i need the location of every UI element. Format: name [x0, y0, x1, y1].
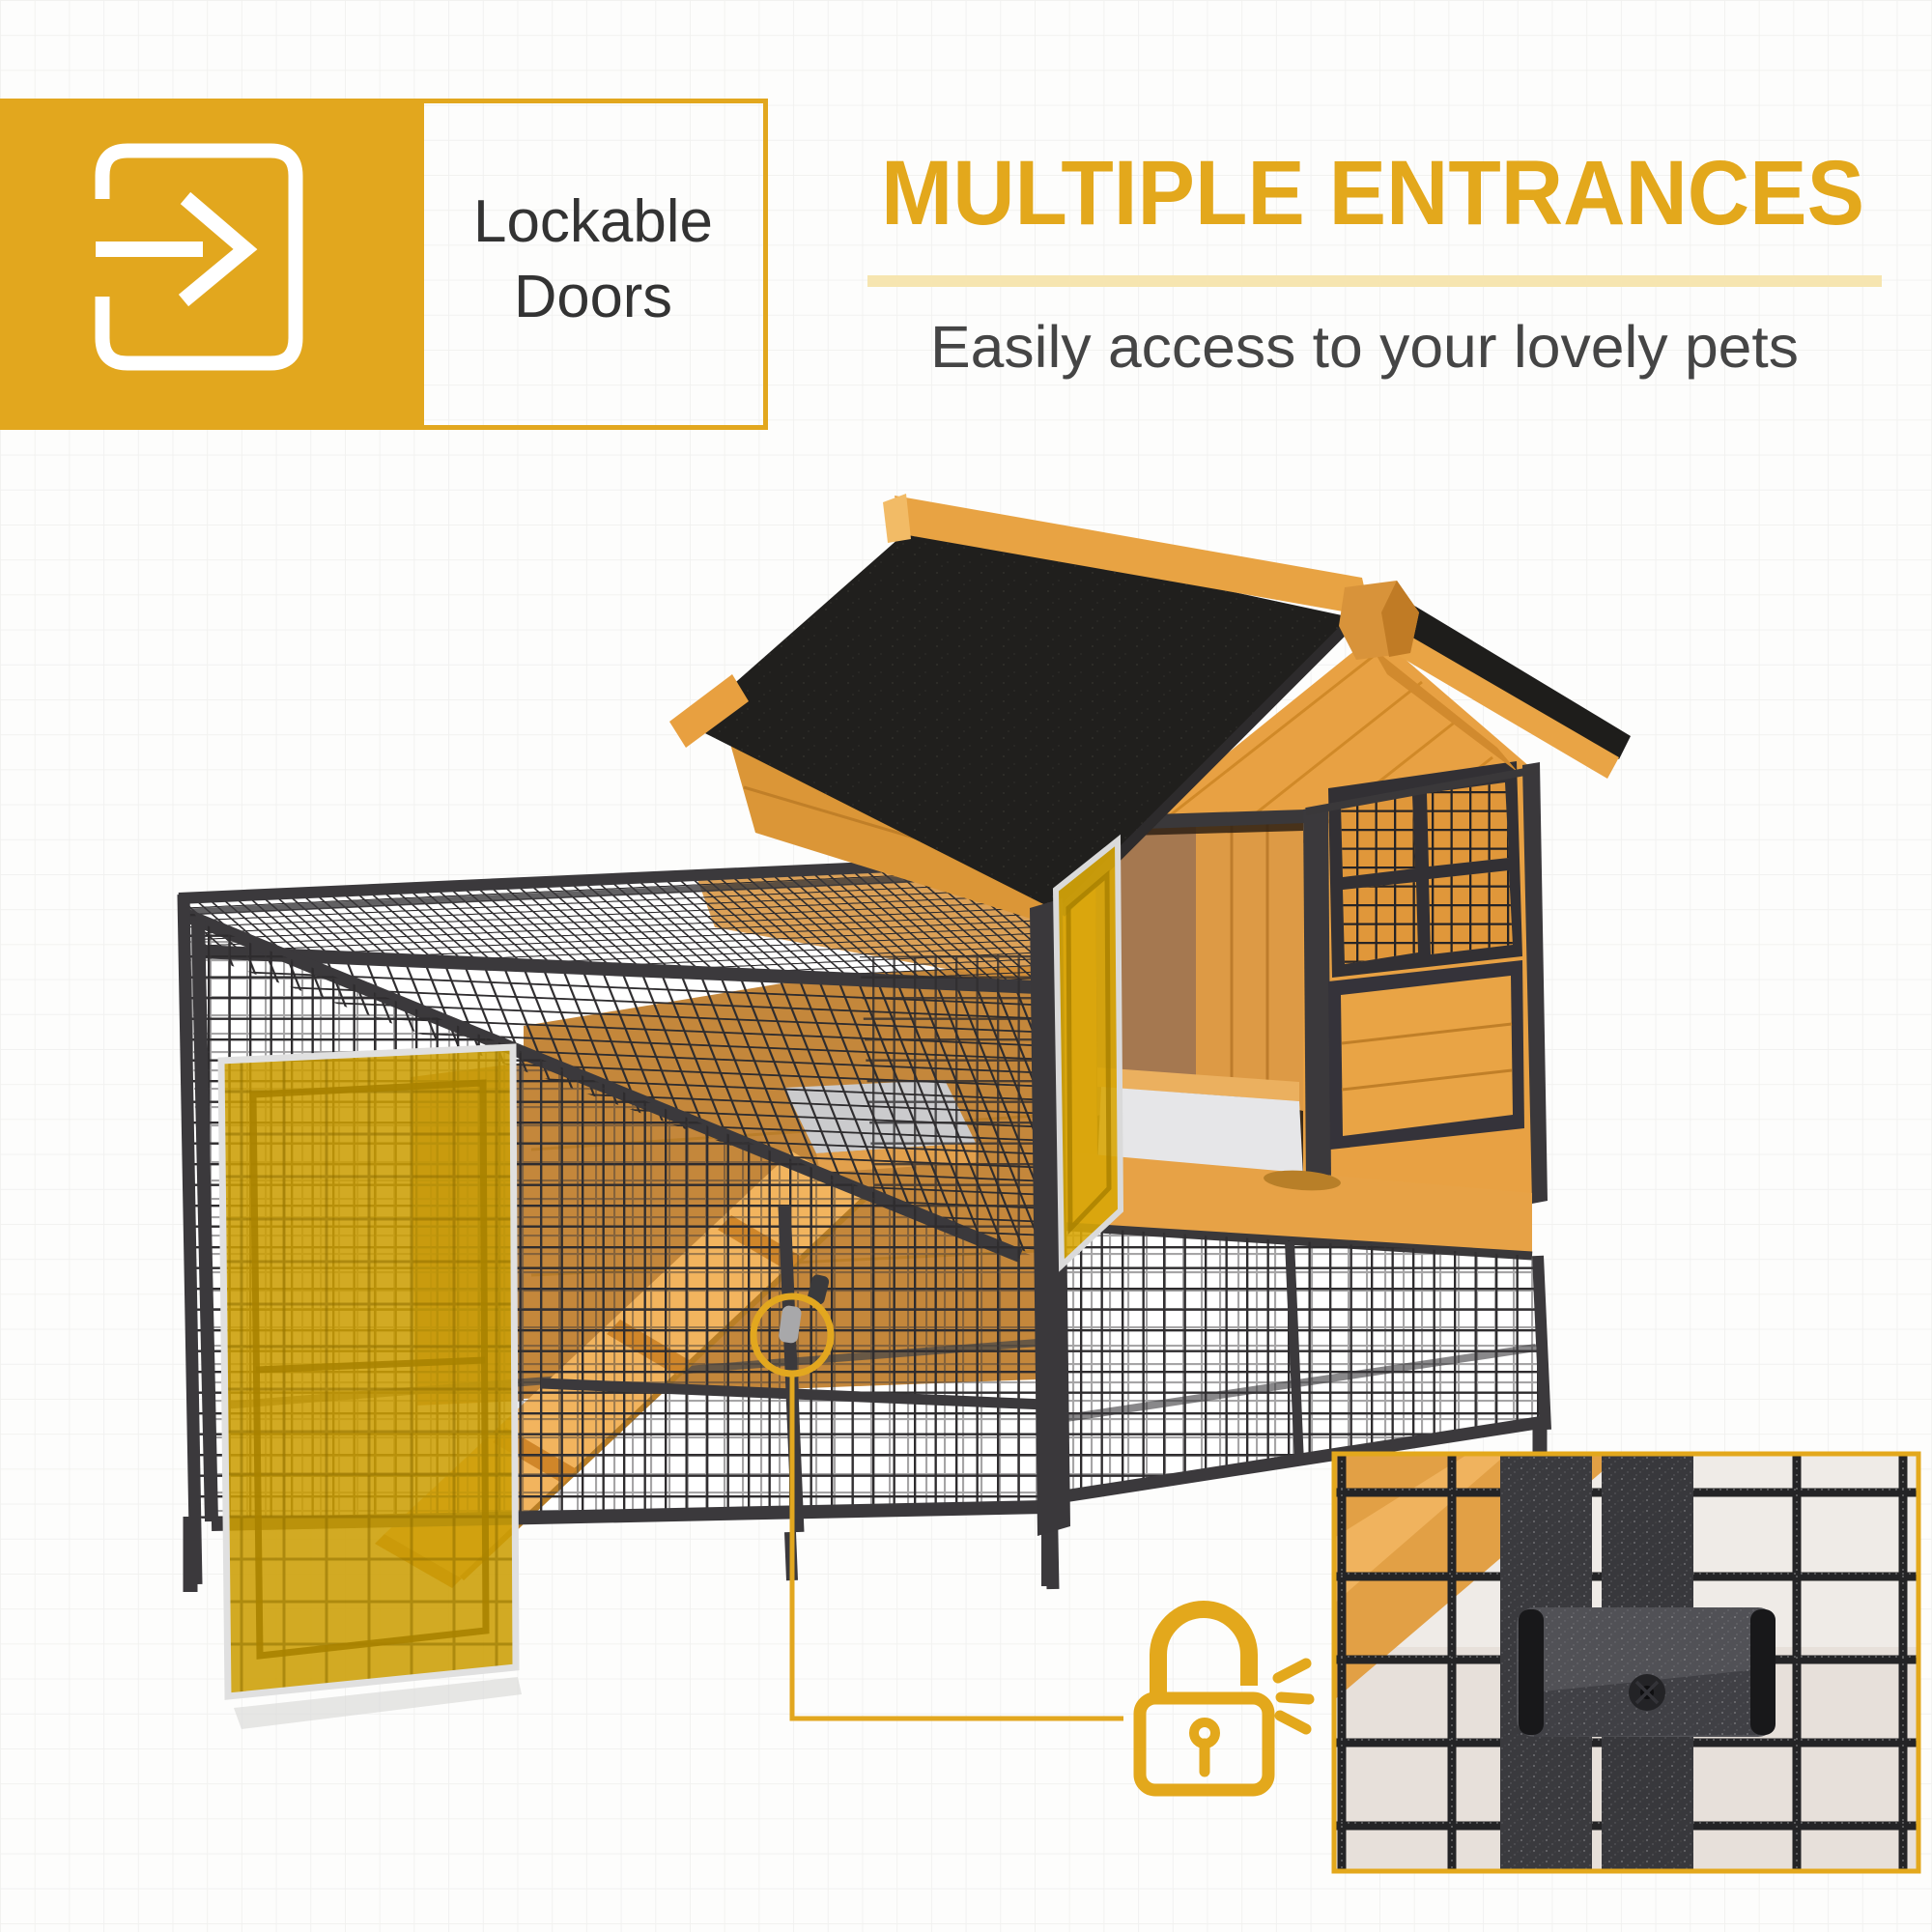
svg-text:Lockable: Lockable [473, 188, 713, 255]
svg-text:Easily access to your lovely p: Easily access to your lovely pets [930, 314, 1799, 380]
svg-text:Doors: Doors [514, 264, 672, 330]
svg-text:MULTIPLE ENTRANCES: MULTIPLE ENTRANCES [881, 142, 1864, 244]
